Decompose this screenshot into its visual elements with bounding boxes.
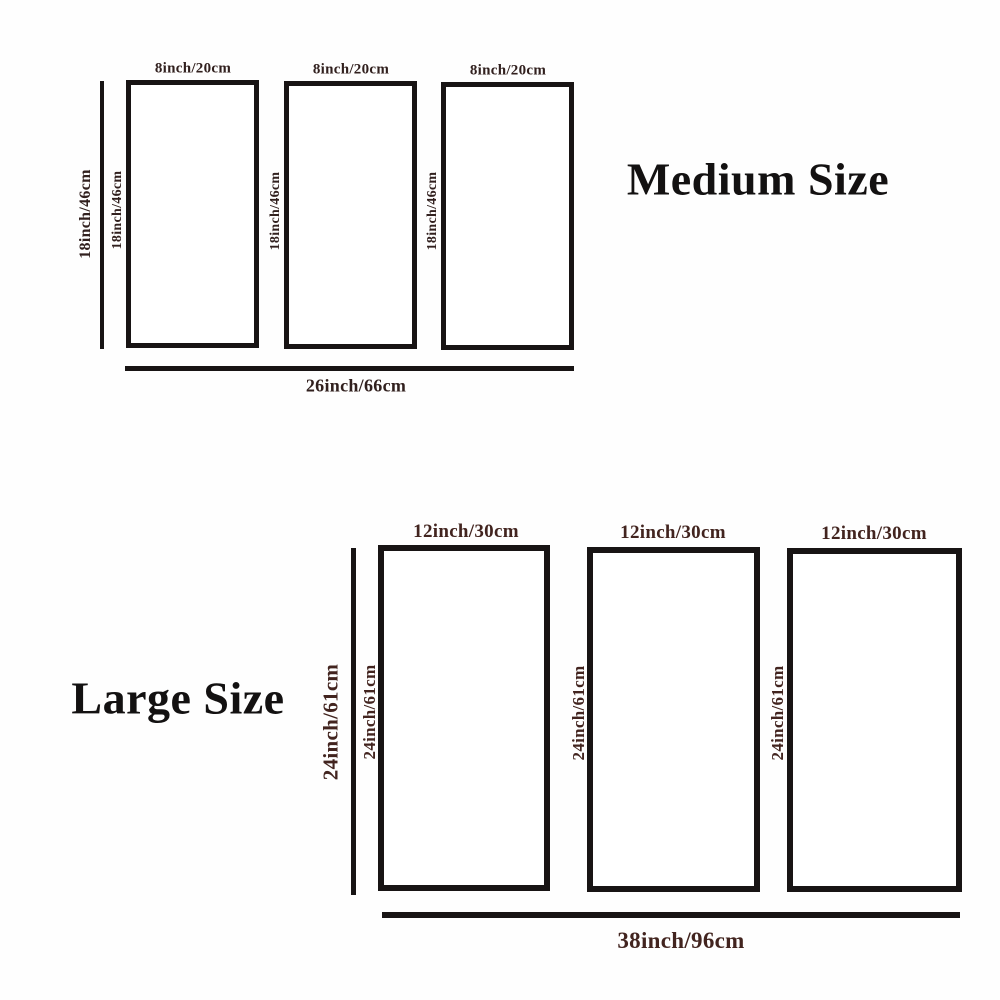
medium-overall-width-line bbox=[125, 366, 574, 371]
medium-panel-3-width-label: 8inch/20cm bbox=[470, 63, 546, 80]
large-panel-2-width-label: 12inch/30cm bbox=[620, 522, 726, 544]
medium-size-title: Medium Size bbox=[627, 153, 889, 206]
large-overall-width-line bbox=[382, 912, 960, 918]
medium-overall-height-line bbox=[100, 81, 104, 349]
medium-panel-3-height-label: 18inch/46cm bbox=[425, 172, 441, 251]
large-panel-3-width-label: 12inch/30cm bbox=[821, 523, 927, 545]
large-panel-1 bbox=[378, 545, 550, 891]
medium-panel-1 bbox=[126, 80, 259, 348]
large-overall-height-line bbox=[351, 548, 356, 895]
medium-panel-2-width-label: 8inch/20cm bbox=[313, 62, 389, 79]
medium-overall-width-label: 26inch/66cm bbox=[306, 376, 406, 397]
medium-panel-1-height-label: 18inch/46cm bbox=[110, 171, 126, 250]
medium-panel-2 bbox=[284, 81, 417, 349]
large-size-title: Large Size bbox=[71, 672, 284, 725]
large-panel-1-height-label: 24inch/61cm bbox=[360, 665, 380, 760]
large-overall-height-label: 24inch/61cm bbox=[319, 664, 344, 780]
size-diagram: 18inch/46cm 8inch/20cm 18inch/46cm 8inch… bbox=[0, 0, 1000, 1000]
large-panel-3-height-label: 24inch/61cm bbox=[768, 666, 788, 761]
large-overall-width-label: 38inch/96cm bbox=[617, 928, 744, 954]
large-panel-3 bbox=[787, 548, 962, 892]
medium-panel-3 bbox=[441, 82, 574, 350]
large-panel-2-height-label: 24inch/61cm bbox=[569, 666, 589, 761]
large-panel-1-width-label: 12inch/30cm bbox=[413, 521, 519, 543]
medium-overall-height-label: 18inch/46cm bbox=[77, 169, 95, 259]
medium-panel-2-height-label: 18inch/46cm bbox=[268, 172, 284, 251]
medium-panel-1-width-label: 8inch/20cm bbox=[155, 61, 231, 78]
large-panel-2 bbox=[587, 547, 760, 892]
